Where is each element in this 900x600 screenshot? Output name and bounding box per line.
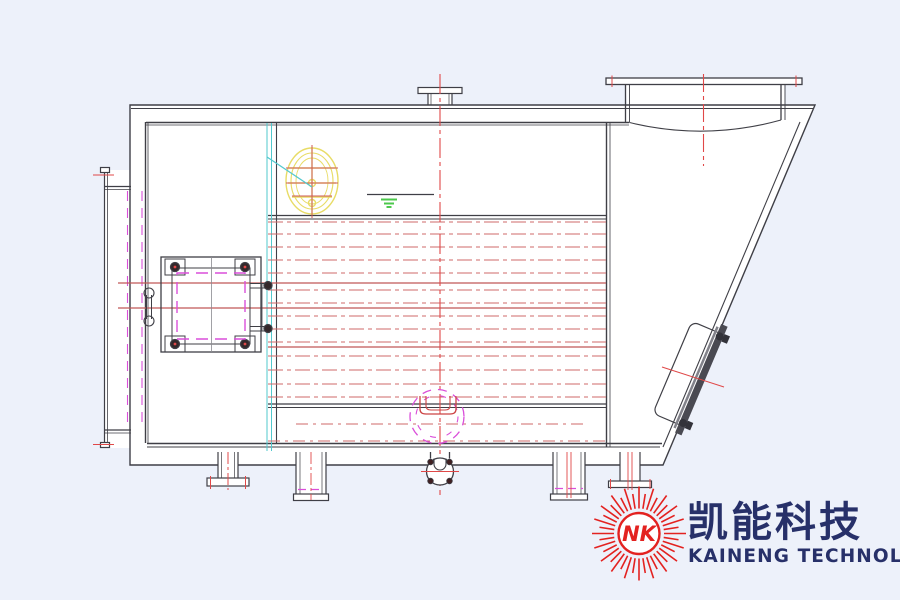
company-name-cn: 凯能科技 — [687, 498, 887, 546]
sun-ray — [633, 558, 635, 573]
bottom-pipe-left — [294, 452, 329, 501]
sun-ray — [664, 527, 679, 529]
sun-ray — [659, 548, 677, 561]
sun-ray — [643, 494, 645, 509]
company-logo: NK — [592, 487, 686, 581]
logo-monogram: NK — [622, 522, 658, 546]
sun-ray — [659, 506, 677, 519]
sun-ray — [633, 494, 635, 509]
sun-ray — [654, 554, 667, 572]
boiler-cad-screenshot: NK 凯能科技 KAINENG TECHNOLOGY — [0, 0, 900, 600]
sun-ray — [654, 495, 667, 513]
sun-ray — [611, 495, 624, 513]
sun-ray — [643, 558, 645, 573]
white-fills — [104, 78, 815, 465]
sun-ray — [601, 548, 619, 561]
sun-ray — [611, 554, 624, 572]
sun-ray — [664, 537, 679, 539]
sun-ray — [599, 527, 614, 529]
bottom-pipe-right — [551, 452, 588, 500]
company-name-en: KAINENG TECHNOLOGY — [688, 547, 888, 567]
sun-ray — [601, 506, 619, 519]
sun-ray — [599, 537, 614, 539]
